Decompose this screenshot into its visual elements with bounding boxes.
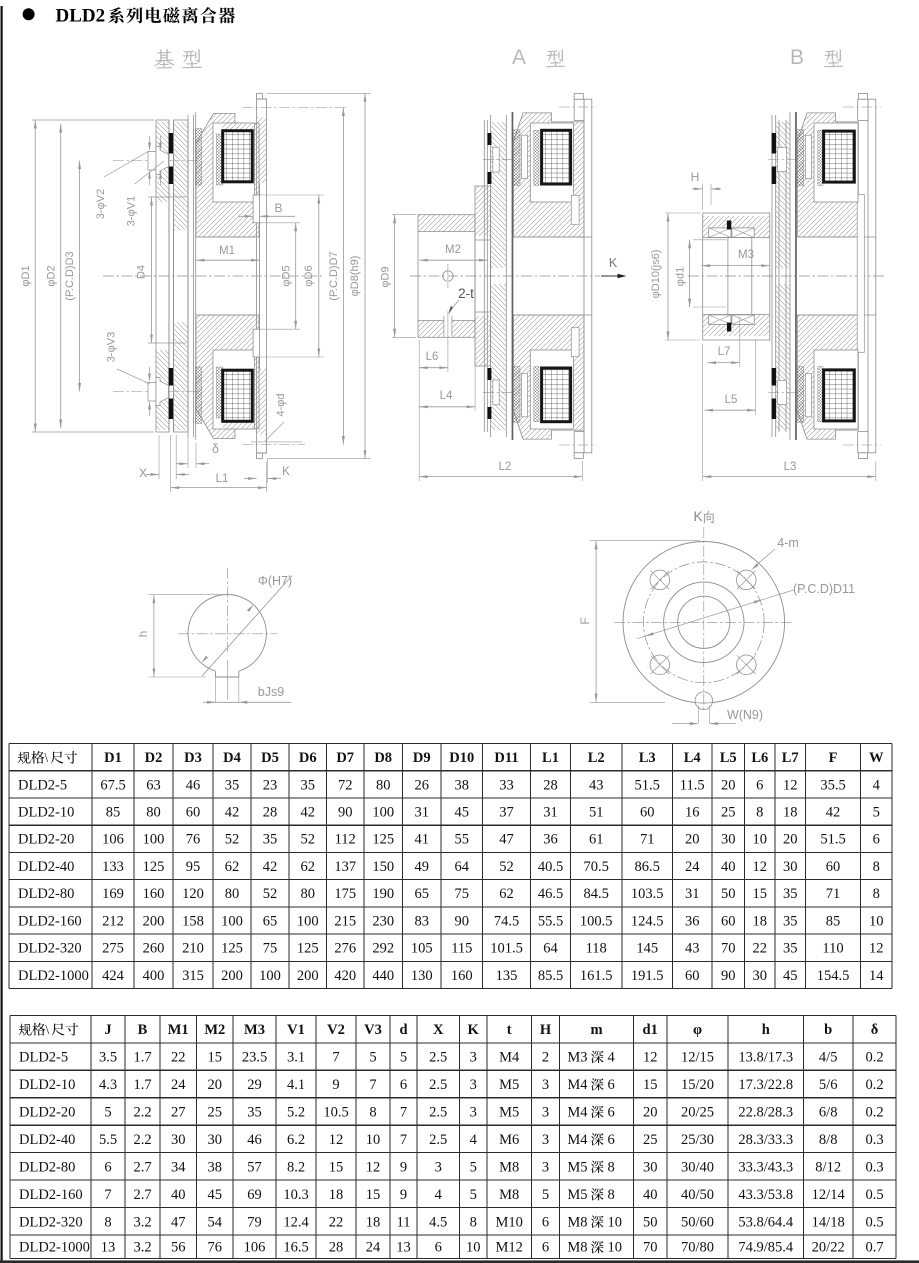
svg-text:10: 10 (608, 1240, 623, 1256)
svg-text:M8: M8 (567, 1214, 587, 1230)
svg-text:3-φV3: 3-φV3 (106, 332, 118, 362)
svg-text:26: 26 (415, 777, 430, 793)
svg-text:135: 135 (496, 968, 518, 984)
svg-text:106: 106 (244, 1240, 266, 1256)
svg-text:100.5: 100.5 (580, 913, 613, 929)
svg-text:150: 150 (372, 859, 394, 875)
svg-text:25: 25 (721, 805, 736, 821)
svg-text:K: K (693, 509, 702, 524)
svg-text:90: 90 (455, 913, 470, 929)
svg-text:0.7: 0.7 (865, 1240, 883, 1256)
svg-text:33: 33 (499, 777, 514, 793)
svg-text:3.1: 3.1 (287, 1049, 305, 1065)
svg-text:0.3: 0.3 (865, 1132, 883, 1148)
svg-text:φd1: φd1 (675, 267, 687, 286)
svg-text:L7: L7 (718, 346, 731, 358)
svg-text:57: 57 (247, 1159, 262, 1175)
svg-text:15: 15 (329, 1159, 344, 1175)
svg-text:L4: L4 (684, 750, 701, 766)
svg-text:440: 440 (372, 968, 394, 984)
svg-text:8/8: 8/8 (819, 1132, 838, 1148)
svg-text:φD1: φD1 (20, 265, 32, 286)
svg-text:154.5: 154.5 (817, 968, 850, 984)
svg-text:10.5: 10.5 (323, 1104, 348, 1120)
svg-text:3-φV1: 3-φV1 (126, 196, 138, 226)
svg-text:L7: L7 (782, 750, 799, 766)
svg-text:56: 56 (171, 1240, 186, 1256)
svg-text:M5: M5 (499, 1077, 519, 1093)
svg-text:70.5: 70.5 (584, 859, 609, 875)
svg-text:6: 6 (608, 1132, 615, 1148)
svg-text:22.8/28.3: 22.8/28.3 (738, 1104, 793, 1120)
svg-text:200: 200 (221, 968, 243, 984)
svg-text:18: 18 (753, 913, 768, 929)
svg-text:23.5: 23.5 (242, 1049, 267, 1065)
svg-text:L2: L2 (588, 750, 605, 766)
svg-text:\: \ (44, 750, 48, 765)
svg-text:23: 23 (263, 777, 278, 793)
svg-text:100: 100 (143, 832, 165, 848)
svg-text:L3: L3 (639, 750, 656, 766)
svg-text:5: 5 (470, 1159, 477, 1175)
svg-text:10: 10 (753, 832, 768, 848)
svg-text:20: 20 (721, 777, 736, 793)
svg-text:11.5: 11.5 (680, 777, 705, 793)
svg-text:d1: d1 (643, 1022, 658, 1038)
svg-text:6: 6 (104, 1159, 111, 1175)
svg-text:4.1: 4.1 (287, 1077, 305, 1093)
svg-text:B: B (790, 46, 804, 69)
svg-text:115: 115 (451, 941, 472, 957)
svg-text:43.3/53.8: 43.3/53.8 (738, 1187, 793, 1203)
svg-text:105: 105 (411, 941, 433, 957)
svg-text:50: 50 (721, 886, 736, 902)
svg-text:137: 137 (334, 859, 356, 875)
svg-text:6: 6 (608, 1104, 615, 1120)
svg-text:15/20: 15/20 (681, 1077, 714, 1093)
svg-text:F: F (829, 750, 838, 766)
svg-text:M8: M8 (499, 1187, 519, 1203)
svg-text:200: 200 (143, 913, 165, 929)
svg-text:W(N9): W(N9) (727, 708, 763, 722)
svg-text:1.7: 1.7 (133, 1077, 151, 1093)
svg-text:36: 36 (685, 913, 700, 929)
svg-text:55.5: 55.5 (538, 913, 563, 929)
svg-text:31: 31 (543, 805, 558, 821)
svg-text:3.2: 3.2 (133, 1214, 151, 1230)
svg-text:20: 20 (783, 832, 798, 848)
svg-text:6/8: 6/8 (819, 1104, 838, 1120)
svg-text:4: 4 (435, 1187, 443, 1203)
svg-text:60: 60 (685, 968, 700, 984)
svg-text:50/60: 50/60 (681, 1214, 714, 1230)
svg-text:8: 8 (873, 886, 880, 902)
svg-text:84.5: 84.5 (584, 886, 609, 902)
svg-text:100: 100 (372, 805, 394, 821)
svg-text:124.5: 124.5 (631, 913, 664, 929)
svg-text:18: 18 (329, 1187, 344, 1203)
svg-text:133: 133 (102, 859, 124, 875)
svg-text:D10: D10 (449, 750, 474, 766)
svg-text:63: 63 (146, 777, 161, 793)
svg-text:24: 24 (171, 1077, 186, 1093)
svg-text:85: 85 (106, 805, 121, 821)
svg-text:D5: D5 (261, 750, 279, 766)
svg-text:8: 8 (608, 1159, 615, 1175)
svg-text:12/14: 12/14 (812, 1187, 846, 1203)
svg-text:29: 29 (247, 1077, 262, 1093)
svg-text:42: 42 (301, 805, 316, 821)
svg-text:43: 43 (589, 777, 604, 793)
svg-text:420: 420 (334, 968, 356, 984)
svg-text:60: 60 (186, 805, 201, 821)
svg-text:DLD2-20: DLD2-20 (18, 832, 74, 848)
svg-text:16.5: 16.5 (283, 1240, 308, 1256)
svg-text:67.5: 67.5 (100, 777, 125, 793)
svg-text:3: 3 (542, 1077, 549, 1093)
svg-text:φD9: φD9 (380, 266, 392, 287)
svg-text:6: 6 (435, 1240, 442, 1256)
svg-text:110: 110 (822, 941, 843, 957)
svg-text:35: 35 (225, 777, 240, 793)
svg-text:9: 9 (332, 1077, 339, 1093)
svg-text:12: 12 (783, 777, 798, 793)
svg-text:L6: L6 (751, 750, 768, 766)
svg-text:42: 42 (263, 859, 278, 875)
svg-text:M5: M5 (499, 1104, 519, 1120)
svg-text:52: 52 (225, 832, 240, 848)
svg-text:12.4: 12.4 (283, 1214, 309, 1230)
svg-text:30/40: 30/40 (681, 1159, 714, 1175)
svg-text:2.5: 2.5 (429, 1077, 447, 1093)
svg-text:276: 276 (334, 941, 356, 957)
svg-text:64: 64 (543, 941, 558, 957)
svg-text:45: 45 (783, 968, 798, 984)
svg-text:4.3: 4.3 (99, 1077, 117, 1093)
svg-text:315: 315 (182, 968, 204, 984)
svg-text:55: 55 (455, 832, 470, 848)
svg-text:30: 30 (721, 832, 736, 848)
svg-text:45: 45 (208, 1187, 223, 1203)
svg-text:L2: L2 (499, 461, 512, 473)
svg-text:125: 125 (297, 941, 319, 957)
svg-text:210: 210 (182, 941, 204, 957)
svg-text:100: 100 (259, 968, 281, 984)
svg-text:D2: D2 (145, 750, 163, 766)
svg-text:7: 7 (369, 1077, 376, 1093)
svg-text:M3: M3 (738, 249, 754, 261)
svg-text:18: 18 (783, 805, 798, 821)
svg-text:52: 52 (301, 832, 316, 848)
svg-text:35: 35 (301, 777, 316, 793)
svg-text:7: 7 (332, 1049, 339, 1065)
svg-text:22: 22 (171, 1049, 186, 1065)
svg-text:30: 30 (753, 968, 768, 984)
svg-text:M4: M4 (499, 1049, 520, 1065)
svg-text:M5: M5 (567, 1187, 587, 1203)
svg-text:L6: L6 (426, 351, 439, 363)
svg-text:2.7: 2.7 (133, 1187, 151, 1203)
svg-text:14/18: 14/18 (812, 1214, 845, 1230)
svg-text:M6: M6 (499, 1132, 519, 1148)
svg-text:0.3: 0.3 (865, 1159, 883, 1175)
svg-text:36: 36 (543, 832, 558, 848)
svg-text:103.5: 103.5 (631, 886, 664, 902)
svg-text:24: 24 (685, 859, 700, 875)
svg-text:18: 18 (366, 1214, 381, 1230)
svg-text:76: 76 (208, 1240, 223, 1256)
svg-text:75: 75 (455, 886, 470, 902)
svg-text:D3: D3 (184, 750, 202, 766)
svg-text:DLD2-5: DLD2-5 (19, 1049, 68, 1065)
svg-text:DLD2-40: DLD2-40 (19, 1132, 75, 1148)
svg-text:40.5: 40.5 (538, 859, 563, 875)
svg-text:35: 35 (263, 832, 278, 848)
svg-text:0.2: 0.2 (865, 1077, 883, 1093)
svg-text:22: 22 (329, 1214, 344, 1230)
svg-text:(P.C.D)D11: (P.C.D)D11 (793, 582, 855, 596)
svg-text:292: 292 (372, 941, 394, 957)
svg-text:bJs9: bJs9 (258, 685, 284, 699)
svg-text:5: 5 (104, 1104, 111, 1120)
svg-text:61: 61 (589, 832, 604, 848)
svg-text:74.9/85.4: 74.9/85.4 (738, 1240, 794, 1256)
svg-text:M12: M12 (495, 1240, 522, 1256)
svg-text:D4: D4 (223, 750, 241, 766)
svg-text:15: 15 (366, 1187, 381, 1203)
svg-text:175: 175 (334, 886, 356, 902)
svg-text:31: 31 (415, 805, 430, 821)
svg-text:15: 15 (208, 1049, 223, 1065)
svg-text:24: 24 (366, 1240, 381, 1256)
svg-text:7: 7 (104, 1187, 111, 1203)
svg-text:M8: M8 (499, 1159, 519, 1175)
svg-text:H: H (691, 170, 700, 184)
svg-text:D1: D1 (104, 750, 122, 766)
svg-text:70/80: 70/80 (681, 1240, 714, 1256)
svg-text:3: 3 (542, 1132, 549, 1148)
svg-text:Φ(H7): Φ(H7) (258, 574, 292, 588)
svg-text:M8: M8 (567, 1240, 587, 1256)
svg-text:3.5: 3.5 (99, 1049, 117, 1065)
svg-text:DLD2-80: DLD2-80 (18, 886, 74, 902)
svg-text:1.7: 1.7 (133, 1049, 151, 1065)
svg-text:60: 60 (826, 859, 841, 875)
svg-text:51.5: 51.5 (635, 777, 660, 793)
svg-text:DLD2-320: DLD2-320 (18, 941, 82, 957)
svg-text:M5: M5 (567, 1159, 587, 1175)
svg-text:M3: M3 (567, 1049, 587, 1065)
svg-text:4: 4 (873, 777, 881, 793)
svg-text:12/15: 12/15 (681, 1049, 714, 1065)
svg-text:V2: V2 (327, 1022, 345, 1038)
svg-text:DLD2-160: DLD2-160 (19, 1187, 83, 1203)
svg-text:60: 60 (721, 913, 736, 929)
svg-text:6: 6 (400, 1077, 407, 1093)
svg-text:20: 20 (208, 1077, 223, 1093)
svg-text:75: 75 (263, 941, 278, 957)
svg-text:M3: M3 (244, 1022, 265, 1038)
svg-text:130: 130 (411, 968, 433, 984)
svg-text:DLD2-10: DLD2-10 (18, 805, 74, 821)
svg-text:72: 72 (338, 777, 353, 793)
svg-text:79: 79 (247, 1214, 262, 1230)
svg-text:62: 62 (301, 859, 316, 875)
svg-text:D7: D7 (336, 750, 354, 766)
svg-text:40: 40 (643, 1187, 658, 1203)
svg-text:h: h (762, 1022, 770, 1038)
svg-text:2.5: 2.5 (429, 1049, 447, 1065)
svg-text:118: 118 (586, 941, 607, 957)
svg-text:6: 6 (756, 777, 763, 793)
svg-text:51.5: 51.5 (820, 832, 845, 848)
svg-text:7: 7 (400, 1132, 407, 1148)
svg-text:4.5: 4.5 (429, 1214, 447, 1230)
svg-text:101.5: 101.5 (490, 941, 523, 957)
svg-text:28.3/33.3: 28.3/33.3 (738, 1132, 793, 1148)
svg-text:160: 160 (451, 968, 473, 984)
svg-text:L1: L1 (542, 750, 559, 766)
svg-text:50: 50 (643, 1214, 658, 1230)
svg-text:12: 12 (643, 1049, 658, 1065)
svg-text:62: 62 (225, 859, 240, 875)
svg-text:28: 28 (263, 805, 278, 821)
svg-text:3: 3 (542, 1104, 549, 1120)
svg-text:62: 62 (499, 886, 514, 902)
svg-text:191.5: 191.5 (631, 968, 664, 984)
svg-text:DLD2-1000: DLD2-1000 (19, 1240, 90, 1256)
svg-text:M1: M1 (168, 1022, 189, 1038)
svg-text:2.7: 2.7 (133, 1159, 151, 1175)
svg-text:φD2: φD2 (46, 265, 58, 286)
svg-text:100: 100 (297, 913, 319, 929)
svg-text:M2: M2 (445, 244, 461, 256)
svg-text:L4: L4 (440, 390, 453, 402)
svg-text:M10: M10 (495, 1214, 522, 1230)
svg-text:0.2: 0.2 (865, 1049, 883, 1065)
svg-text:169: 169 (102, 886, 124, 902)
svg-text:106: 106 (102, 832, 124, 848)
svg-text:M4: M4 (567, 1104, 588, 1120)
svg-text:51: 51 (589, 805, 604, 821)
svg-text:d: d (399, 1022, 407, 1038)
svg-text:φ: φ (693, 1022, 702, 1038)
svg-text:28: 28 (329, 1240, 344, 1256)
svg-text:6: 6 (873, 832, 880, 848)
svg-text:K: K (282, 466, 290, 478)
svg-text:H: H (540, 1022, 552, 1038)
svg-text:120: 120 (182, 886, 204, 902)
svg-text:0.2: 0.2 (865, 1104, 883, 1120)
svg-text:6: 6 (542, 1214, 549, 1230)
svg-text:(P.C.D)D3: (P.C.D)D3 (64, 251, 76, 300)
svg-text:13.8/17.3: 13.8/17.3 (738, 1049, 793, 1065)
svg-text:86.5: 86.5 (635, 859, 660, 875)
svg-text:L3: L3 (784, 461, 797, 473)
svg-text:3: 3 (470, 1077, 477, 1093)
svg-text:424: 424 (102, 968, 125, 984)
svg-text:5: 5 (369, 1049, 376, 1065)
svg-text:33.3/43.3: 33.3/43.3 (738, 1159, 793, 1175)
svg-text:4-φd: 4-φd (275, 393, 287, 416)
svg-text:80: 80 (301, 886, 316, 902)
svg-text:52: 52 (263, 886, 278, 902)
svg-text:6: 6 (608, 1077, 615, 1093)
svg-text:L1: L1 (216, 473, 229, 485)
svg-text:DLD2-160: DLD2-160 (18, 913, 82, 929)
svg-text:71: 71 (640, 832, 655, 848)
svg-text:3-φV2: 3-φV2 (95, 189, 107, 219)
svg-text:K: K (609, 256, 618, 270)
svg-text:12: 12 (869, 941, 884, 957)
svg-text:80: 80 (146, 805, 161, 821)
svg-text:31: 31 (685, 886, 700, 902)
svg-text:38: 38 (455, 777, 470, 793)
svg-text:DLD2-1000: DLD2-1000 (18, 968, 89, 984)
svg-text:47: 47 (499, 832, 514, 848)
svg-text:42: 42 (225, 805, 240, 821)
svg-text:10: 10 (869, 913, 884, 929)
svg-text:δ: δ (871, 1022, 879, 1038)
svg-text:125: 125 (143, 859, 165, 875)
svg-text:8.2: 8.2 (287, 1159, 305, 1175)
svg-text:L5: L5 (720, 750, 737, 766)
svg-text:8/12: 8/12 (815, 1159, 841, 1175)
svg-text:2.2: 2.2 (133, 1132, 151, 1148)
svg-text:9: 9 (400, 1187, 407, 1203)
svg-text:3: 3 (435, 1159, 442, 1175)
svg-text:A: A (512, 46, 526, 69)
svg-text:10: 10 (366, 1132, 381, 1148)
svg-text:5: 5 (470, 1187, 477, 1203)
svg-text:37: 37 (499, 805, 514, 821)
svg-text:10: 10 (608, 1214, 623, 1230)
svg-text:DLD2-80: DLD2-80 (19, 1159, 75, 1175)
svg-text:20: 20 (685, 832, 700, 848)
svg-text:2-t: 2-t (458, 286, 474, 301)
svg-text:DLD2-5: DLD2-5 (18, 777, 67, 793)
svg-text:71: 71 (826, 886, 841, 902)
svg-text:42: 42 (826, 805, 841, 821)
svg-text:125: 125 (372, 832, 394, 848)
svg-text:DLD2: DLD2 (56, 6, 106, 27)
svg-text:25: 25 (643, 1132, 658, 1148)
svg-text:DLD2-20: DLD2-20 (19, 1104, 75, 1120)
svg-text:46: 46 (247, 1132, 262, 1148)
svg-text:34: 34 (171, 1159, 186, 1175)
svg-text:35.5: 35.5 (820, 777, 845, 793)
svg-text:8: 8 (369, 1104, 376, 1120)
svg-text:45: 45 (455, 805, 470, 821)
svg-text:3: 3 (470, 1049, 477, 1065)
svg-text:20/22: 20/22 (812, 1240, 845, 1256)
svg-text:h: h (136, 631, 150, 638)
svg-text:90: 90 (338, 805, 353, 821)
svg-text:17.3/22.8: 17.3/22.8 (738, 1077, 793, 1093)
svg-text:5.2: 5.2 (287, 1104, 305, 1120)
svg-text:10.3: 10.3 (283, 1187, 308, 1203)
svg-text:100: 100 (221, 913, 243, 929)
svg-text:10: 10 (466, 1240, 481, 1256)
svg-text:K: K (468, 1022, 480, 1038)
svg-text:13: 13 (101, 1240, 116, 1256)
svg-text:30: 30 (643, 1159, 658, 1175)
svg-text:215: 215 (334, 913, 356, 929)
svg-text:\: \ (45, 1022, 49, 1037)
svg-text:30: 30 (171, 1132, 186, 1148)
svg-text:5: 5 (542, 1187, 549, 1203)
svg-text:W: W (869, 750, 884, 766)
